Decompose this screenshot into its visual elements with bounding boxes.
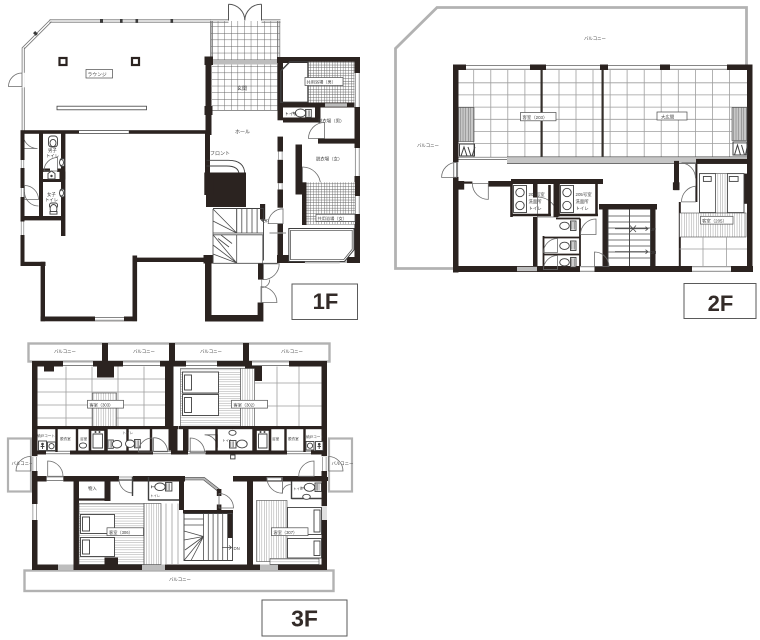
svg-text:バルコニー: バルコニー (54, 349, 76, 354)
svg-text:205号室: 205号室 (576, 191, 593, 198)
svg-text:トイレ: トイレ (150, 494, 161, 498)
svg-text:脱衣室: 脱衣室 (288, 436, 299, 441)
svg-text:客室（306）: 客室（306） (109, 529, 133, 536)
svg-text:脱衣場（女）: 脱衣場（女） (316, 156, 342, 163)
svg-text:フロント: フロント (210, 151, 230, 157)
svg-text:UP: UP (650, 227, 656, 232)
svg-text:物入: 物入 (88, 485, 97, 492)
svg-text:トイレ: トイレ (576, 206, 589, 211)
svg-text:納戸コート: 納戸コート (306, 434, 324, 439)
svg-text:トイレ: トイレ (529, 206, 542, 211)
svg-text:バルコニー: バルコニー (12, 461, 34, 466)
svg-text:バルコニー: バルコニー (133, 349, 155, 354)
svg-text:DN: DN (234, 546, 240, 551)
svg-text:脱衣場（男）: 脱衣場（男） (318, 118, 344, 125)
svg-text:浴室: 浴室 (80, 436, 88, 441)
svg-text:納戸コート: 納戸コート (37, 433, 55, 438)
svg-text:バルコニー: バルコニー (584, 36, 606, 41)
svg-text:洗面所: 洗面所 (576, 198, 590, 205)
svg-text:トイレ: トイレ (285, 112, 298, 117)
svg-text:トイレ: トイレ (123, 431, 134, 435)
svg-text:トイレ: トイレ (293, 487, 304, 491)
svg-text:客室（203）: 客室（203） (523, 114, 548, 121)
svg-text:バルコニー: バルコニー (417, 143, 439, 148)
svg-text:3F: 3F (291, 606, 318, 632)
svg-text:203号室: 203号室 (529, 191, 546, 198)
svg-text:洗面所: 洗面所 (529, 198, 543, 205)
svg-text:バルコニー: バルコニー (332, 461, 354, 466)
svg-text:1F: 1F (313, 289, 339, 314)
svg-text:共用浴場（女）: 共用浴場（女） (318, 215, 347, 222)
svg-text:ホール: ホール (235, 130, 250, 136)
svg-text:客室（205）: 客室（205） (702, 218, 727, 225)
svg-text:大広間: 大広間 (661, 113, 675, 120)
svg-text:2F: 2F (708, 291, 734, 316)
svg-text:バルコニー: バルコニー (200, 349, 222, 354)
svg-text:バルコニー: バルコニー (169, 577, 191, 582)
svg-text:客室（303）: 客室（303） (90, 402, 114, 409)
svg-text:客室（302）: 客室（302） (234, 402, 258, 409)
svg-text:ラウンジ: ラウンジ (88, 71, 107, 78)
svg-text:共用浴場（男）: 共用浴場（男） (307, 79, 336, 86)
svg-text:DN: DN (650, 250, 656, 255)
svg-text:玄関: 玄関 (237, 85, 247, 92)
svg-text:トイレ: トイレ (45, 198, 58, 203)
svg-text:浴室: 浴室 (272, 436, 280, 441)
svg-text:バルコニー: バルコニー (281, 349, 303, 354)
svg-text:脱衣室: 脱衣室 (60, 436, 71, 441)
svg-text:客室（307）: 客室（307） (274, 529, 298, 536)
